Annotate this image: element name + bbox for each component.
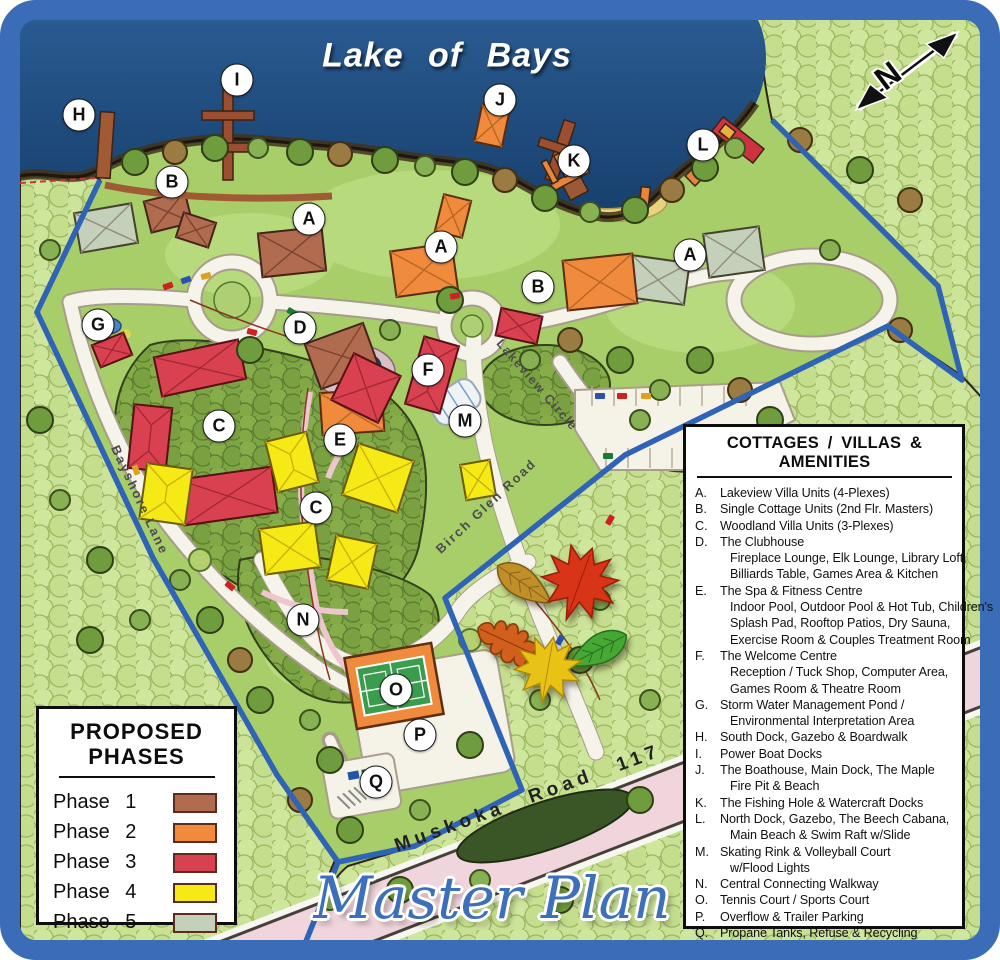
legend-item: A. Lakeview Villa Units (4-Plexes)	[695, 485, 954, 501]
legend-item: C. Woodland Villa Units (3-Plexes)	[695, 518, 954, 534]
legend-item-text: Woodland Villa Units (3-Plexes)	[720, 518, 954, 534]
legend-sub-line: Billiards Table, Games Area & Kitchen	[730, 566, 967, 582]
lake-title: Lake of Bays	[322, 37, 572, 76]
legend-item: K. The Fishing Hole & Watercraft Docks	[695, 795, 954, 811]
legend-item-text: Central Connecting Walkway	[720, 876, 954, 892]
phases-legend-title: PROPOSED PHASES	[39, 719, 234, 769]
legend-item-letter: C.	[695, 518, 720, 534]
legend-item: E. The Spa & Fitness Centre Indoor Pool,…	[695, 583, 954, 648]
legend-item-text: Tennis Court / Sports Court	[720, 892, 954, 908]
phase-label: Phase 1	[53, 791, 136, 814]
legend-item-text: Power Boat Docks	[720, 746, 954, 762]
legend-item-letter: Q.	[695, 925, 720, 941]
legend-item-letter: J.	[695, 762, 720, 778]
legend-item-sublines: Fire Pit & Beach	[720, 778, 954, 794]
legend-sub-line: Exercise Room & Couples Treatment Room	[730, 632, 993, 648]
legend-item-letter: L.	[695, 811, 720, 827]
legend-item-letter: H.	[695, 729, 720, 745]
legend-divider	[59, 776, 215, 778]
legend-item-sublines: w/Flood Lights	[720, 860, 954, 876]
legend-item-sublines: Fireplace Lounge, Elk Lounge, Library Lo…	[720, 550, 967, 583]
legend-sub-line: Reception / Tuck Shop, Computer Area,	[730, 664, 954, 680]
phase-label: Phase 5	[53, 911, 136, 934]
legend-item-sublines: Reception / Tuck Shop, Computer Area,Gam…	[720, 664, 954, 697]
legend-item-sublines: Main Beach & Swim Raft w/Slide	[720, 827, 954, 843]
legend-item-text: The Clubhouse	[720, 534, 967, 550]
legend-item-text: Skating Rink & Volleyball Court	[720, 844, 954, 860]
amenities-legend-title: COTTAGES / VILLAS & AMENITIES	[695, 434, 954, 472]
phase-color-swatch	[173, 793, 217, 813]
phase-row: Phase 4	[39, 881, 234, 904]
phase-color-swatch	[173, 883, 217, 903]
legend-item-letter: A.	[695, 485, 720, 501]
phase-row: Phase 3	[39, 851, 234, 874]
legend-item-letter: E.	[695, 583, 720, 599]
phases-title-line1: PROPOSED	[39, 719, 234, 744]
phase-row: Phase 2	[39, 821, 234, 844]
legend-item-letter: O.	[695, 892, 720, 908]
legend-item-letter: P.	[695, 909, 720, 925]
legend-sub-line: Fireplace Lounge, Elk Lounge, Library Lo…	[730, 550, 967, 566]
phase-label: Phase 4	[53, 881, 136, 904]
legend-sub-line: Indoor Pool, Outdoor Pool & Hot Tub, Chi…	[730, 599, 993, 615]
amenities-legend: COTTAGES / VILLAS & AMENITIES A. Lakevie…	[683, 424, 965, 929]
legend-item: Q. Propane Tanks, Refuse & Recycling	[695, 925, 954, 941]
phases-title-line2: PHASES	[39, 744, 234, 769]
legend-divider	[697, 476, 952, 478]
legend-item-text: Lakeview Villa Units (4-Plexes)	[720, 485, 954, 501]
legend-item: I. Power Boat Docks	[695, 746, 954, 762]
master-plan-map: Lake of Bays Master Plan Muskoka Road 11…	[0, 0, 1000, 960]
legend-item: J. The Boathouse, Main Dock, The Maple F…	[695, 762, 954, 795]
master-plan-title: Master Plan	[313, 864, 670, 932]
legend-item-text: Overflow & Trailer Parking	[720, 909, 954, 925]
legend-item-letter: D.	[695, 534, 720, 550]
legend-sub-line: Games Room & Theatre Room	[730, 681, 954, 697]
legend-item-sublines: Indoor Pool, Outdoor Pool & Hot Tub, Chi…	[720, 599, 993, 648]
phase-row: Phase 5	[39, 911, 234, 934]
legend-item-text: North Dock, Gazebo, The Beech Cabana,	[720, 811, 954, 827]
legend-item: N. Central Connecting Walkway	[695, 876, 954, 892]
legend-item-text: Storm Water Management Pond /	[720, 697, 954, 713]
legend-item: D. The Clubhouse Fireplace Lounge, Elk L…	[695, 534, 954, 583]
legend-item: L. North Dock, Gazebo, The Beech Cabana,…	[695, 811, 954, 844]
legend-sub-line: Splash Pad, Rooftop Patios, Dry Sauna,	[730, 615, 993, 631]
legend-item-text: Single Cottage Units (2nd Flr. Masters)	[720, 501, 954, 517]
phase-color-swatch	[173, 913, 217, 933]
legend-item-text: The Fishing Hole & Watercraft Docks	[720, 795, 954, 811]
legend-item-text: Propane Tanks, Refuse & Recycling	[720, 925, 954, 941]
legend-item: F. The Welcome Centre Reception / Tuck S…	[695, 648, 954, 697]
legend-item: M. Skating Rink & Volleyball Court w/Flo…	[695, 844, 954, 877]
phases-list: Phase 1 Phase 2 Phase 3 Phase 4 Phase 5	[39, 791, 234, 934]
phase-label: Phase 2	[53, 821, 136, 844]
legend-item: P. Overflow & Trailer Parking	[695, 909, 954, 925]
legend-item-letter: G.	[695, 697, 720, 713]
legend-item-sublines: Environmental Interpretation Area	[720, 713, 954, 729]
phase-row: Phase 1	[39, 791, 234, 814]
legend-item-letter: F.	[695, 648, 720, 664]
phases-legend: PROPOSED PHASES Phase 1 Phase 2 Phase 3 …	[36, 706, 237, 925]
legend-item-letter: I.	[695, 746, 720, 762]
legend-item-text: South Dock, Gazebo & Boardwalk	[720, 729, 954, 745]
legend-item-letter: K.	[695, 795, 720, 811]
phase-label: Phase 3	[53, 851, 136, 874]
legend-item: H. South Dock, Gazebo & Boardwalk	[695, 729, 954, 745]
phase-color-swatch	[173, 823, 217, 843]
legend-sub-line: Fire Pit & Beach	[730, 778, 954, 794]
legend-item-text: The Spa & Fitness Centre	[720, 583, 993, 599]
legend-item: G. Storm Water Management Pond / Environ…	[695, 697, 954, 730]
legend-sub-line: Environmental Interpretation Area	[730, 713, 954, 729]
legend-item-letter: B.	[695, 501, 720, 517]
legend-item-text: The Boathouse, Main Dock, The Maple	[720, 762, 954, 778]
legend-item: B. Single Cottage Units (2nd Flr. Master…	[695, 501, 954, 517]
legend-item-letter: M.	[695, 844, 720, 860]
legend-item-text: The Welcome Centre	[720, 648, 954, 664]
legend-sub-line: Main Beach & Swim Raft w/Slide	[730, 827, 954, 843]
phase-color-swatch	[173, 853, 217, 873]
amenities-list: A. Lakeview Villa Units (4-Plexes) B. Si…	[695, 485, 954, 941]
legend-sub-line: w/Flood Lights	[730, 860, 954, 876]
tennis-court	[344, 643, 443, 729]
legend-item: O. Tennis Court / Sports Court	[695, 892, 954, 908]
legend-item-letter: N.	[695, 876, 720, 892]
